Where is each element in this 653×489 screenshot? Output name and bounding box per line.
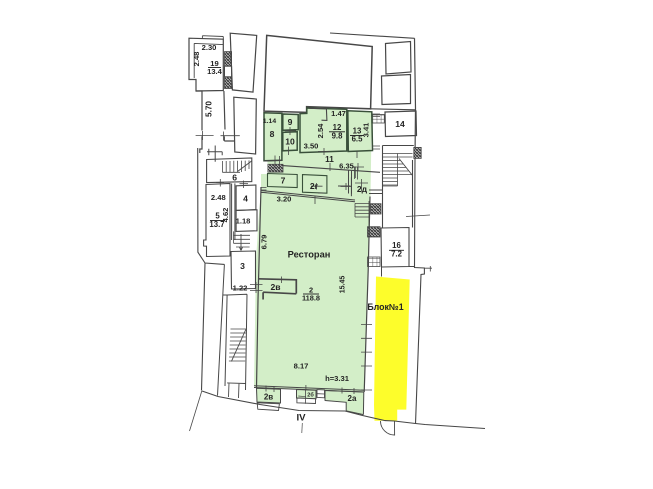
svg-text:6.79: 6.79: [260, 235, 269, 250]
svg-text:2в: 2в: [270, 282, 280, 292]
svg-text:8.17: 8.17: [294, 362, 309, 371]
svg-text:2а: 2а: [348, 394, 357, 403]
svg-text:h=3.31: h=3.31: [325, 374, 350, 383]
svg-text:15.45: 15.45: [340, 276, 347, 294]
svg-text:3: 3: [240, 261, 245, 271]
svg-text:6.35: 6.35: [339, 162, 355, 171]
svg-text:8: 8: [270, 129, 275, 139]
svg-text:7.2: 7.2: [391, 250, 403, 259]
svg-text:2г: 2г: [310, 181, 319, 191]
svg-text:1.14: 1.14: [263, 118, 276, 125]
svg-text:9: 9: [288, 117, 293, 127]
svg-text:4.62: 4.62: [221, 208, 230, 223]
svg-text:Блок№1: Блок№1: [367, 302, 403, 312]
svg-text:1.47: 1.47: [331, 109, 346, 118]
svg-text:6: 6: [232, 172, 237, 182]
svg-text:2в: 2в: [264, 393, 273, 402]
svg-text:2б: 2б: [307, 392, 314, 399]
svg-text:11: 11: [325, 155, 334, 164]
svg-text:1.18: 1.18: [236, 217, 251, 226]
svg-text:Ресторан: Ресторан: [288, 250, 331, 260]
svg-text:3.20: 3.20: [277, 195, 292, 204]
svg-text:2.54: 2.54: [316, 123, 325, 139]
svg-text:118.8: 118.8: [302, 294, 320, 303]
svg-text:2.48: 2.48: [211, 193, 226, 202]
svg-text:5.70: 5.70: [205, 101, 214, 117]
svg-text:3.41: 3.41: [362, 122, 371, 138]
svg-text:4: 4: [243, 194, 248, 204]
svg-text:2.48: 2.48: [192, 52, 201, 67]
svg-text:13.4: 13.4: [207, 67, 223, 76]
svg-text:7: 7: [281, 175, 286, 185]
svg-text:IV: IV: [296, 413, 306, 424]
svg-text:3.50: 3.50: [304, 142, 319, 151]
svg-text:2д: 2д: [357, 184, 368, 194]
svg-text:14: 14: [395, 119, 405, 129]
svg-text:9.8: 9.8: [332, 132, 344, 141]
svg-text:1.22: 1.22: [233, 284, 248, 293]
svg-text:10: 10: [285, 137, 295, 147]
svg-text:2.30: 2.30: [202, 43, 217, 52]
